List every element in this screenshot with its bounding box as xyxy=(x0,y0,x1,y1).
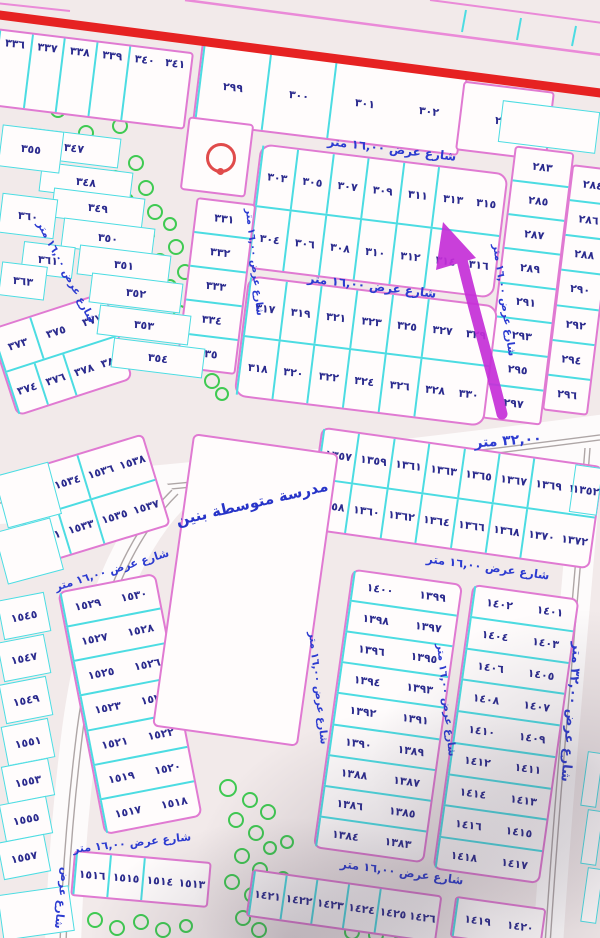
plot-١٥٤٩: ١٥٤٩ xyxy=(0,676,53,724)
plot-١٤٢٣: ١٤٢٣ xyxy=(311,880,348,928)
plot-٢٩٦: ٢٩٦ xyxy=(544,376,590,414)
plot-cell xyxy=(0,885,75,938)
plot-row: ٢٨٦ xyxy=(566,199,600,239)
mosque-icon xyxy=(206,143,236,173)
plot-٣٦٠: ٣٦٠ xyxy=(0,193,58,240)
plot-٣٢٥: ٣٢٥ xyxy=(385,295,428,357)
plot-١٣٨٣: ١٣٨٣ xyxy=(370,825,427,861)
plot-١٤١٧: ١٤١٧ xyxy=(487,845,542,882)
plot-٢٩٧: ٢٩٧ xyxy=(484,385,543,424)
plot-cell xyxy=(580,751,600,808)
plot-١٣٦٧: ١٣٦٧ xyxy=(492,454,534,507)
plot-١٣٦٣: ١٣٦٣ xyxy=(422,444,464,497)
plot-٣٢٢: ٣٢٢ xyxy=(307,346,350,408)
plot-row: ٢٩٤ xyxy=(549,339,595,379)
plot-١٤٢٤: ١٤٢٤ xyxy=(342,884,379,932)
row-1419-1420: ١٤٢٠١٤١٩ xyxy=(450,896,547,938)
plot-٣٠٢: ٣٠٢ xyxy=(392,69,466,154)
plot-١٤٢١: ١٤٢١ xyxy=(248,871,285,919)
plot-cell xyxy=(154,435,336,744)
plot-١٥٥٥: ١٥٥٥ xyxy=(0,796,53,842)
plot-٣١٧: ٣١٧ xyxy=(243,277,286,339)
plot-٣١٩: ٣١٩ xyxy=(278,282,321,344)
plot-row xyxy=(154,435,336,744)
plot-١٣٦٠: ١٣٦٠ xyxy=(344,484,386,537)
plot-٣٢٦: ٣٢٦ xyxy=(378,354,421,416)
plot-١٣٦٤: ١٣٦٤ xyxy=(415,494,457,547)
plot-map: ٣٤١٣٤٠٣٣٩٣٣٨٣٣٧٣٣٦٣٠٢٣٠١٣٠٠٢٩٩٢٩٨٢٨٣٢٨٥٢… xyxy=(0,0,600,938)
plot-٣٢٧: ٣٢٧ xyxy=(420,299,463,361)
plot-row: ٢٩٦ xyxy=(544,374,590,414)
plot-row: ٢٨٤ xyxy=(570,166,600,204)
plot-٣٠٩: ٣٠٩ xyxy=(361,158,403,222)
plot-٢٩٩: ٢٩٩ xyxy=(194,44,270,130)
plot-٣٢٤: ٣٢٤ xyxy=(342,350,385,412)
plot-١٣٦٨: ١٣٦٨ xyxy=(485,504,527,557)
plot-٢٩٤: ٢٩٤ xyxy=(549,341,595,379)
plot-٣٠٠: ٣٠٠ xyxy=(260,52,336,138)
plot-٢٩٢: ٢٩٢ xyxy=(553,306,599,344)
plot-cell xyxy=(580,867,600,924)
plot-١٣٧٠: ١٣٧٠ xyxy=(520,509,562,562)
plot-٣٢٨: ٣٢٨ xyxy=(413,359,456,421)
plot-row: ٢٩٠ xyxy=(557,269,600,309)
plot-٣٢٩: ٣٢٩ xyxy=(456,303,497,365)
plot-٢٨٨: ٢٨٨ xyxy=(561,236,600,274)
plot-row: ٢٩٢ xyxy=(553,304,599,344)
plot-١٥٥٣: ١٥٥٣ xyxy=(1,758,55,804)
plot-٢٨٦: ٢٨٦ xyxy=(566,201,600,239)
plot-٣٠٨: ٣٠٨ xyxy=(318,216,360,280)
plot-٣٠١: ٣٠١ xyxy=(326,60,402,146)
plot-١٥١٤: ١٥١٤ xyxy=(140,858,178,903)
plot-٣١٤: ٣١٤ xyxy=(423,229,465,293)
plot-row: ٣٤١٣٤٠٣٣٩٣٣٨٣٣٧٣٣٦ xyxy=(0,30,192,127)
plot-٣١٨: ٣١٨ xyxy=(236,337,279,399)
plot-١٣٦٩: ١٣٦٩ xyxy=(527,458,569,511)
plot-٣٠٥: ٣٠٥ xyxy=(290,150,332,214)
plot-row: ١٤٢٦١٤٢٥١٤٢٤١٤٢٣١٤٢٢١٤٢١ xyxy=(248,871,440,938)
plot-٣١١: ٣١١ xyxy=(396,163,438,227)
plot-١٣٦١: ١٣٦١ xyxy=(387,439,429,492)
plot-٣٥٥: ٣٥٥ xyxy=(0,124,64,173)
plot-١٤٢٢: ١٤٢٢ xyxy=(279,876,316,924)
plot-١٥١٦: ١٥١٦ xyxy=(72,852,110,897)
plot-١٤١٩: ١٤١٩ xyxy=(452,898,502,938)
plot-١٥١٨: ١٥١٨ xyxy=(148,782,200,823)
plot-٢٩٠: ٢٩٠ xyxy=(557,271,600,309)
block-303-316: ٣١٥٣١٣٣١١٣٠٩٣٠٧٣٠٥٣٠٣٣١٦٣١٤٣١٢٣١٠٣٠٨٣٠٦٣… xyxy=(245,143,508,299)
school-plot xyxy=(152,433,339,747)
row-1513-1516: ١٥١٣١٥١٤١٥١٥١٥١٦ xyxy=(70,850,211,908)
plot-١٣٦٢: ١٣٦٢ xyxy=(379,489,421,542)
plot-٣٠٣: ٣٠٣ xyxy=(255,145,297,209)
plot-cell xyxy=(580,809,600,866)
plot-١٥١٣: ١٥١٣ xyxy=(174,861,210,906)
block-1352-1372: ١٣٧١١٣٦٩١٣٦٧١٣٦٥١٣٦٣١٣٦١١٣٥٩١٣٥٧١٣٧٢١٣٧٠… xyxy=(307,427,600,570)
plot-١٤٢٠: ١٤٢٠ xyxy=(496,904,544,938)
plot-١٣٧٢: ١٣٧٢ xyxy=(555,514,595,567)
block-317-330: ٣٢٩٣٢٧٣٢٥٣٢٣٣٢١٣١٩٣١٧٣٣٠٣٢٨٣٢٦٣٢٤٣٢٢٣٢٠٣… xyxy=(234,275,499,427)
plot-row: ٢٨٨ xyxy=(561,234,600,274)
plot-١٣٥٢: ١٣٥٢ xyxy=(569,464,600,515)
plot-١٣٨٤: ١٣٨٤ xyxy=(315,817,374,853)
plot-٢٨٤: ٢٨٤ xyxy=(570,166,600,204)
plot-٣١٣: ٣١٣ xyxy=(431,167,473,231)
row-1421-1426: ١٤٢٦١٤٢٥١٤٢٤١٤٢٣١٤٢٢١٤٢١ xyxy=(246,869,443,938)
plot-row: ٢٩٧ xyxy=(484,383,544,424)
plot-١٥٥٧: ١٥٥٧ xyxy=(0,834,51,880)
plot-٣١٢: ٣١٢ xyxy=(388,224,430,288)
plot-١٤٢٥: ١٤٢٥ xyxy=(373,889,410,937)
plot-١٥١٧: ١٥١٧ xyxy=(100,791,154,833)
plot-١٣٦٦: ١٣٦٦ xyxy=(450,499,492,552)
plot-٣٢٠: ٣٢٠ xyxy=(271,341,314,403)
plot-١٤١٨: ١٤١٨ xyxy=(435,838,492,875)
plot-٣٠٦: ٣٠٦ xyxy=(283,211,325,275)
plot-٣٢١: ٣٢١ xyxy=(314,286,357,348)
plot-row: ١٥١٣١٥١٤١٥١٥١٥١٦ xyxy=(72,852,209,906)
plot-٣٦٣: ٣٦٣ xyxy=(0,261,48,300)
plot-row: ١٤٢٠١٤١٩ xyxy=(452,898,544,938)
plot-١٤٢٦: ١٤٢٦ xyxy=(405,893,441,938)
plot-١٥٤٧: ١٥٤٧ xyxy=(0,634,51,682)
plot-٣٠٧: ٣٠٧ xyxy=(325,154,367,218)
plot-١٣٥٩: ١٣٥٩ xyxy=(352,434,394,487)
row-336-341: ٣٤١٣٤٠٣٣٩٣٣٨٣٣٧٣٣٦ xyxy=(0,28,194,130)
plot-٣٢٣: ٣٢٣ xyxy=(349,290,392,352)
plot-١٣٦٥: ١٣٦٥ xyxy=(457,449,499,502)
plot-٣٣٠: ٣٣٠ xyxy=(448,363,489,425)
plot-١٥١٥: ١٥١٥ xyxy=(106,855,144,900)
plot-٣١٠: ٣١٠ xyxy=(353,220,395,284)
